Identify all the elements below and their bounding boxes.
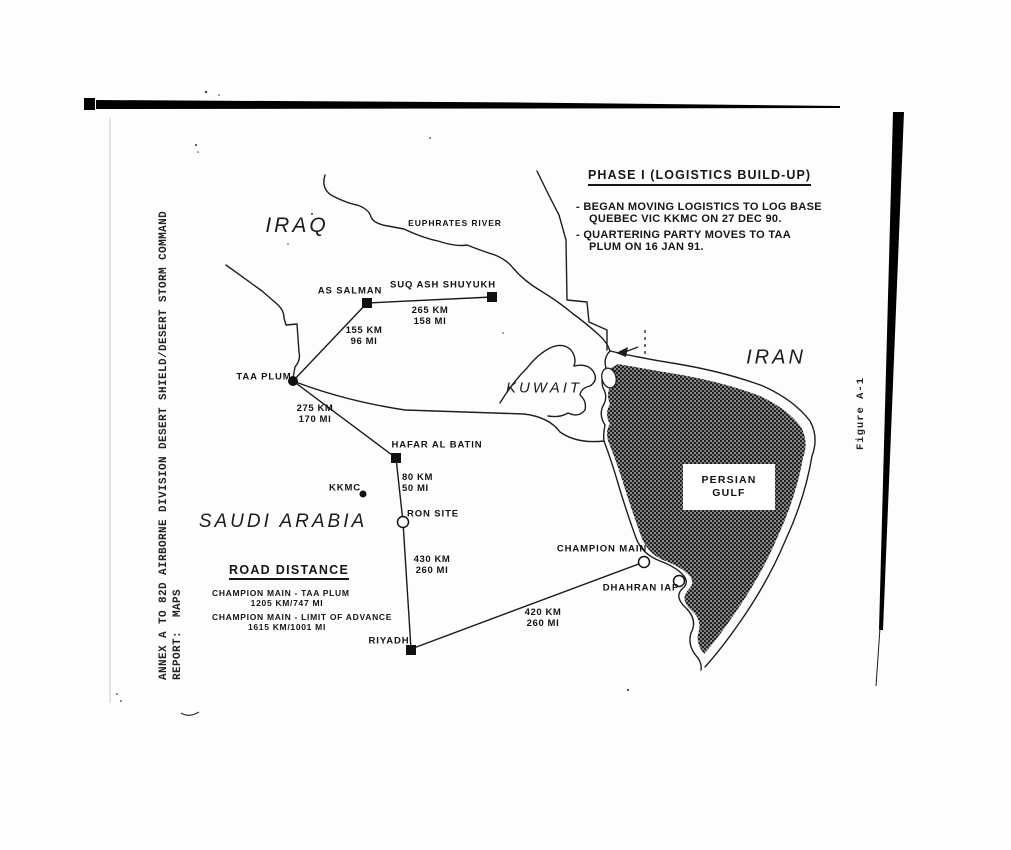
phase-bullet-0-line-0: - BEGAN MOVING LOGISTICS TO LOG BASE — [576, 201, 868, 213]
phase-title: PHASE I (LOGISTICS BUILD-UP) — [588, 168, 811, 186]
road-entry-0-route: CHAMPION MAIN - TAA PLUM — [212, 588, 412, 598]
distance-label-1: 155 KM96 MI — [346, 326, 383, 347]
road-distance-entries: CHAMPION MAIN - TAA PLUM1205 KM/747 MICH… — [212, 588, 412, 632]
as-salman-label: AS SALMAN — [318, 286, 383, 297]
ron-site-label: RON SITE — [407, 509, 459, 520]
road-entry-0-distance: 1205 KM/747 MI — [212, 598, 362, 608]
phase-bullets: - BEGAN MOVING LOGISTICS TO LOG BASEQUEB… — [576, 201, 868, 253]
road-distance-box: ROAD DISTANCE CHAMPION MAIN - TAA PLUM12… — [212, 561, 412, 636]
annex-margin-line1: ANNEX A TO 82D AIRBORNE DIVISION DESERT … — [157, 180, 171, 680]
region-label-iraq: IRAQ — [265, 214, 328, 238]
figure-number-label: Figure A-1 — [855, 350, 867, 450]
suq-ash-shuyukh-label: SUQ ASH SHUYUKH — [390, 280, 496, 291]
road-entry-1-distance: 1615 KM/1001 MI — [212, 622, 362, 632]
euphrates-river-label: EUPHRATES RIVER — [408, 218, 502, 228]
distance-label-5: 420 KM260 MI — [525, 608, 562, 629]
label-layer: ANNEX A TO 82D AIRBORNE DIVISION DESERT … — [0, 0, 1011, 850]
taa-plum-label: TAA PLUM — [236, 372, 291, 383]
dhahran-iap-label: DHAHRAN IAP — [603, 583, 679, 594]
distance-label-2: 275 KM170 MI — [297, 404, 334, 425]
phase-bullet-0-line-1: QUEBEC VIC KKMC ON 27 DEC 90. — [589, 213, 868, 225]
road-entry-1-route: CHAMPION MAIN - LIMIT OF ADVANCE — [212, 612, 412, 622]
scanned-map-page: ANNEX A TO 82D AIRBORNE DIVISION DESERT … — [0, 0, 1011, 850]
champion-main-label: CHAMPION MAIN — [557, 544, 647, 555]
persian-gulf-label-text: PERSIAN GULF — [694, 474, 764, 500]
distance-label-0: 265 KM158 MI — [412, 306, 449, 327]
phase-bullet-1-line-0: - QUARTERING PARTY MOVES TO TAA — [576, 229, 868, 241]
region-label-iran: IRAN — [746, 347, 806, 370]
persian-gulf-label: PERSIAN GULF — [683, 464, 775, 510]
road-distance-title: ROAD DISTANCE — [229, 563, 349, 580]
riyadh-label: RIYADH — [369, 636, 410, 647]
annex-margin-line2: REPORT: MAPS — [171, 180, 185, 680]
distance-label-3: 80 KM50 MI — [402, 473, 433, 494]
phase-bullet-1-line-1: PLUM ON 16 JAN 91. — [589, 241, 868, 253]
kkmc-label: KKMC — [329, 483, 361, 494]
region-label-saudi-arabia: SAUDI ARABIA — [199, 511, 367, 533]
phase-notes-box: PHASE I (LOGISTICS BUILD-UP) - BEGAN MOV… — [576, 166, 868, 256]
distance-label-4: 430 KM260 MI — [414, 555, 451, 576]
hafar-al-batin-label: HAFAR AL BATIN — [391, 440, 482, 451]
annex-margin-text: ANNEX A TO 82D AIRBORNE DIVISION DESERT … — [157, 180, 185, 680]
region-label-kuwait: KUWAIT — [506, 380, 582, 397]
